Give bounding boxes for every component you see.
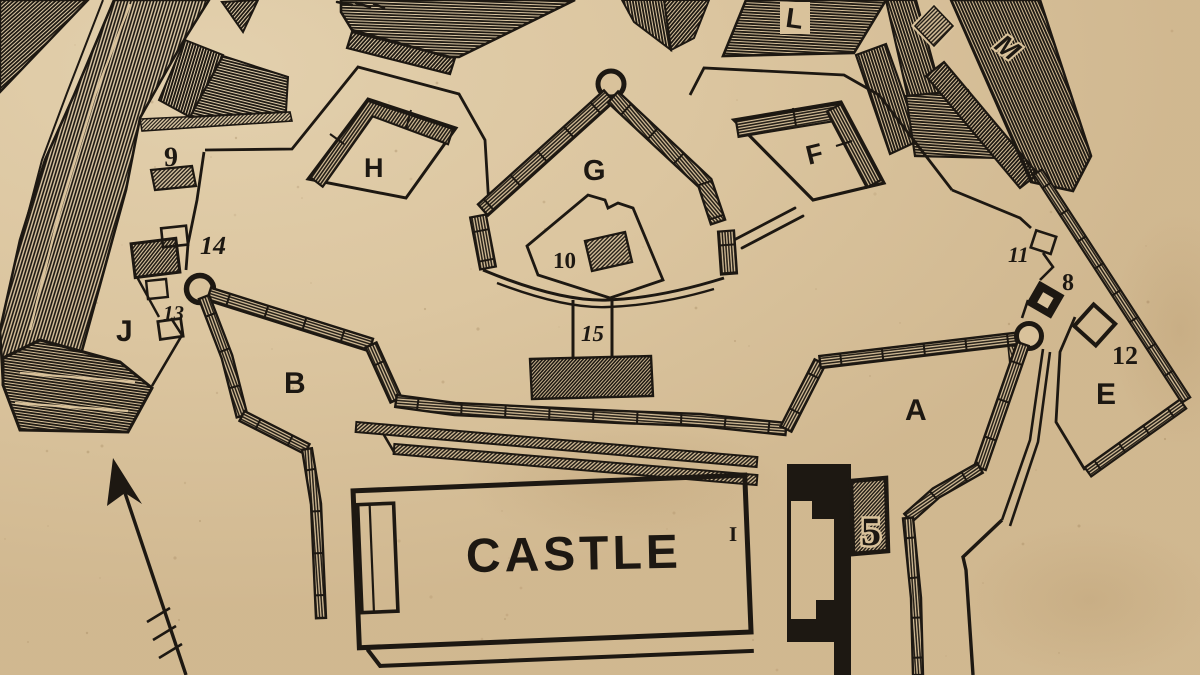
svg-text:11: 11 <box>1008 242 1029 267</box>
svg-text:9: 9 <box>164 142 178 173</box>
svg-text:I: I <box>729 522 737 546</box>
svg-text:5: 5 <box>861 509 881 554</box>
svg-text:CASTLE: CASTLE <box>465 526 682 584</box>
svg-text:10: 10 <box>553 248 576 273</box>
svg-text:E: E <box>1096 378 1116 411</box>
svg-text:H: H <box>364 153 384 183</box>
svg-text:15: 15 <box>581 321 604 346</box>
svg-text:G: G <box>583 155 606 187</box>
svg-text:12: 12 <box>1112 341 1138 370</box>
svg-text:B: B <box>284 367 306 400</box>
svg-text:J: J <box>116 315 133 348</box>
svg-text:A: A <box>905 394 927 427</box>
svg-text:13: 13 <box>163 301 184 325</box>
svg-text:14: 14 <box>200 231 226 260</box>
svg-text:8: 8 <box>1062 270 1074 296</box>
